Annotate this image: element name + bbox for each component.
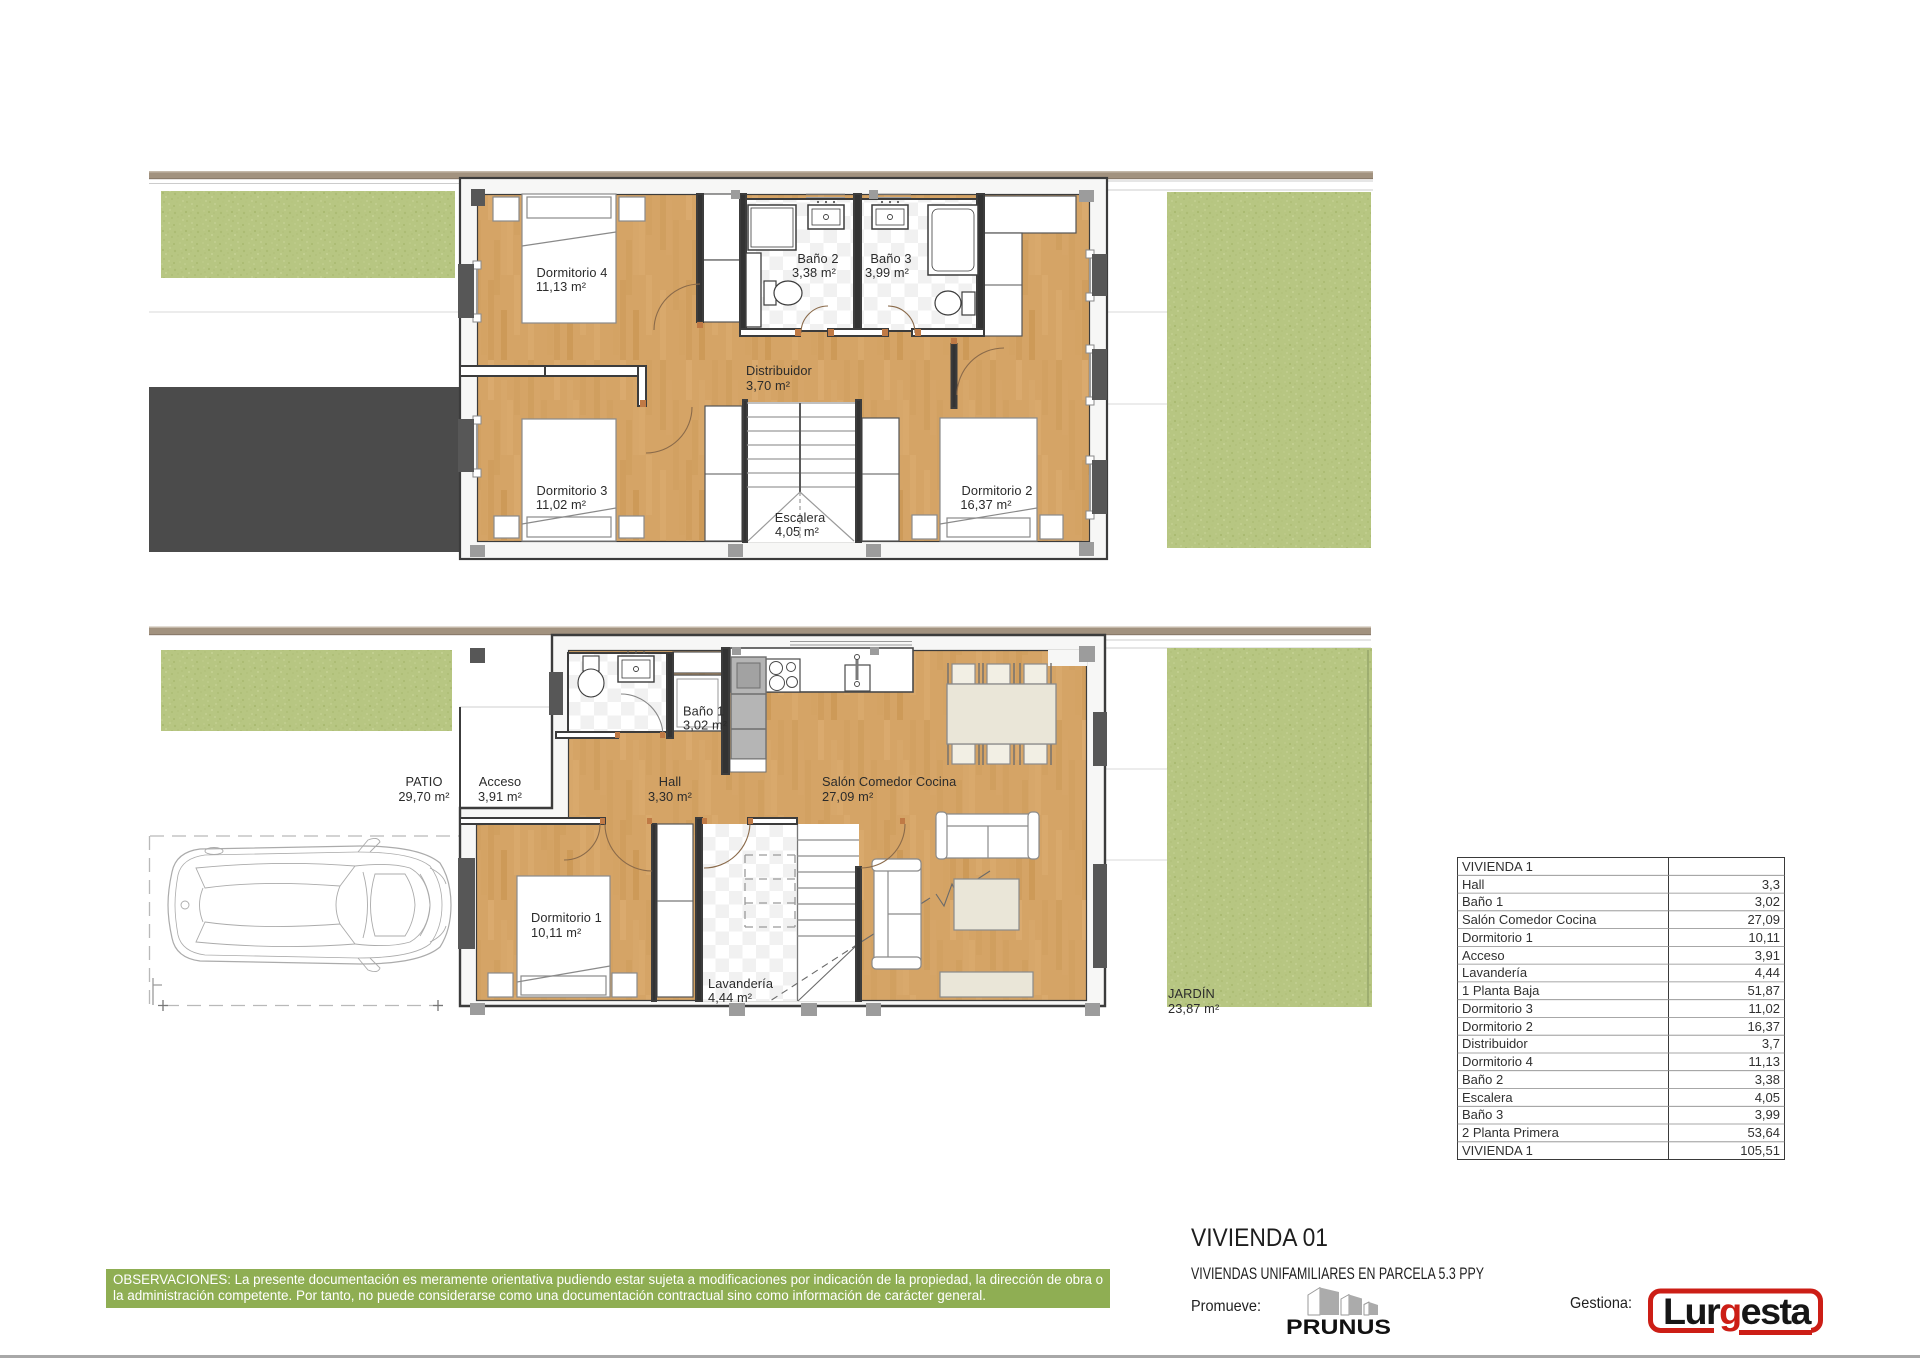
svg-text:3,38: 3,38 [1755,1072,1780,1087]
svg-text:Lavandería: Lavandería [1462,965,1528,980]
svg-text:27,09: 27,09 [1747,912,1780,927]
svg-text:1 Planta Baja: 1 Planta Baja [1462,983,1540,998]
svg-text:Gestiona:: Gestiona: [1570,1295,1632,1312]
svg-text:Baño 1: Baño 1 [683,704,724,719]
svg-text:4,05: 4,05 [1755,1090,1780,1105]
svg-text:la administración competente.: la administración competente. Por tanto,… [113,1288,986,1303]
svg-text:VIVIENDA 1: VIVIENDA 1 [1462,1143,1533,1158]
svg-text:23,87 m²: 23,87 m² [1168,1001,1220,1016]
svg-text:3,3: 3,3 [1762,877,1780,892]
svg-text:Baño 2: Baño 2 [797,251,838,266]
svg-text:11,02 m²: 11,02 m² [536,497,587,512]
svg-text:16,37 m²: 16,37 m² [960,497,1012,512]
svg-text:3,91 m²: 3,91 m² [478,789,523,804]
svg-text:PATIO: PATIO [406,774,443,789]
svg-text:29,70 m²: 29,70 m² [398,789,450,804]
svg-text:Dormitorio 3: Dormitorio 3 [1462,1001,1533,1016]
svg-text:10,11: 10,11 [1748,930,1780,945]
svg-text:4,44: 4,44 [1755,965,1780,980]
svg-text:11,13 m²: 11,13 m² [536,279,587,294]
svg-text:Baño 2: Baño 2 [1462,1072,1503,1087]
svg-text:Escalera: Escalera [775,510,826,525]
svg-text:3,02: 3,02 [1755,894,1780,909]
svg-text:Distribuidor: Distribuidor [746,363,813,378]
svg-text:16,37: 16,37 [1747,1019,1780,1034]
svg-text:53,64: 53,64 [1747,1125,1780,1140]
svg-text:10,11 m²: 10,11 m² [531,925,582,940]
svg-text:Dormitorio 2: Dormitorio 2 [962,483,1033,498]
svg-text:Dormitorio 1: Dormitorio 1 [1462,930,1533,945]
svg-text:3,70 m²: 3,70 m² [746,378,791,393]
svg-text:Promueve:: Promueve: [1191,1298,1261,1315]
svg-text:Acceso: Acceso [1462,948,1505,963]
svg-text:Baño 3: Baño 3 [870,251,911,266]
svg-text:Hall: Hall [659,774,681,789]
svg-text:51,87: 51,87 [1747,983,1780,998]
svg-text:Salón Comedor Cocina: Salón Comedor Cocina [822,774,957,789]
svg-text:VIVIENDAS UNIFAMILIARES EN PAR: VIVIENDAS UNIFAMILIARES EN PARCELA 5.3 P… [1191,1264,1484,1283]
svg-text:Dormitorio 3: Dormitorio 3 [537,483,608,498]
svg-text:Hall: Hall [1462,877,1485,892]
svg-text:Acceso: Acceso [479,774,522,789]
svg-text:Lurgesta: Lurgesta [1663,1291,1812,1332]
svg-text:Dormitorio 2: Dormitorio 2 [1462,1019,1533,1034]
svg-text:Baño 1: Baño 1 [1462,894,1503,909]
svg-text:3,30 m²: 3,30 m² [648,789,693,804]
svg-text:VIVIENDA 01: VIVIENDA 01 [1191,1224,1328,1252]
svg-text:JARDÍN: JARDÍN [1168,986,1215,1001]
svg-text:Dormitorio 4: Dormitorio 4 [1462,1054,1533,1069]
svg-text:Salón Comedor Cocina: Salón Comedor Cocina [1462,912,1597,927]
svg-text:4,05 m²: 4,05 m² [775,524,820,539]
svg-text:OBSERVACIONES: La presente doc: OBSERVACIONES: La presente documentación… [113,1272,1103,1287]
svg-text:Dormitorio 1: Dormitorio 1 [531,910,602,925]
svg-text:3,99: 3,99 [1755,1107,1780,1122]
svg-text:Baño 3: Baño 3 [1462,1107,1503,1122]
svg-text:3,91: 3,91 [1755,948,1780,963]
svg-text:27,09 m²: 27,09 m² [822,789,874,804]
svg-text:105,51: 105,51 [1740,1143,1780,1158]
svg-text:Lavandería: Lavandería [708,976,774,991]
svg-text:3,99 m²: 3,99 m² [865,265,910,280]
svg-text:2 Planta Primera: 2 Planta Primera [1462,1125,1560,1140]
svg-text:Distribuidor: Distribuidor [1462,1036,1528,1051]
svg-text:VIVIENDA 1: VIVIENDA 1 [1462,859,1533,874]
svg-text:3,38 m²: 3,38 m² [792,265,837,280]
svg-text:Dormitorio 4: Dormitorio 4 [537,265,608,280]
svg-text:11,13: 11,13 [1748,1054,1780,1069]
svg-text:4,44 m²: 4,44 m² [708,990,753,1005]
svg-text:3,02 m²: 3,02 m² [683,718,728,733]
svg-text:3,7: 3,7 [1762,1036,1780,1051]
svg-text:11,02: 11,02 [1748,1001,1780,1016]
svg-text:Escalera: Escalera [1462,1090,1513,1105]
svg-text:PRUNUS: PRUNUS [1286,1316,1391,1339]
